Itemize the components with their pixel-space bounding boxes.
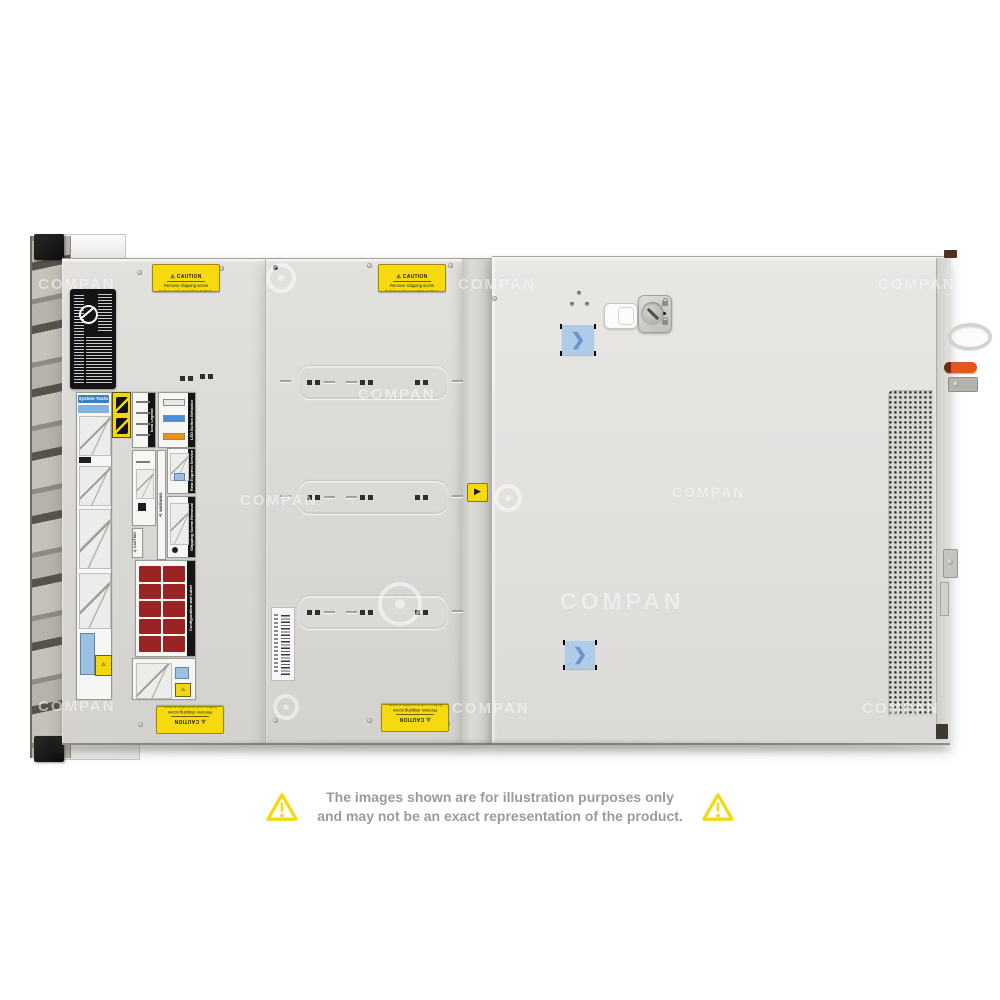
- screw-hole: [273, 265, 278, 270]
- cover-release-sticker: ❯: [562, 325, 594, 355]
- configuration-label: Configuration and Label: [135, 560, 196, 657]
- disclaimer-block: The images shown are for illustration pu…: [0, 788, 1000, 826]
- panel-mark: [200, 374, 213, 379]
- regulatory-label: [70, 289, 116, 389]
- triangle-right-icon: ▶: [474, 486, 481, 496]
- caution-strip-label: ⚠ CAUTION: [132, 528, 143, 558]
- screw: [367, 263, 372, 268]
- cover-release-latch: [604, 303, 638, 329]
- pinch-hazard-icon: [116, 397, 128, 413]
- warning-triangle-icon: [265, 792, 299, 822]
- legend-diagram-label: [132, 450, 156, 526]
- led-bar-white: [163, 399, 185, 406]
- side-latch: [943, 549, 958, 578]
- rear-ring-handle: [948, 323, 992, 350]
- disclaimer-text: The images shown are for illustration pu…: [317, 788, 683, 826]
- chevron-right-icon: ❯: [565, 646, 595, 663]
- panel-mark: [280, 495, 291, 497]
- shipping-screw-label: Shipping Screw Removal: [167, 496, 196, 558]
- drop-shadow: [45, 742, 950, 756]
- led-behavior-label: LED Button Behavior: [158, 392, 196, 448]
- regulatory-logo: [79, 305, 98, 324]
- rear-notch: [944, 250, 957, 258]
- icon-legend-label: Icon Legend: [132, 392, 156, 448]
- screw: [273, 718, 278, 723]
- cover-handle-recess: [298, 366, 448, 399]
- rack-latch-top: [34, 234, 64, 260]
- screw: [138, 722, 143, 727]
- lock-indicator-dot: [663, 312, 666, 315]
- barcode: [281, 613, 290, 675]
- panel-mark: [452, 380, 463, 382]
- screw: [367, 718, 372, 723]
- caution-title: ⚠ CAUTION: [167, 274, 204, 282]
- mini-warning-chip: ⚠: [95, 655, 112, 676]
- service-tag-barcode-label: [271, 607, 295, 681]
- pinch-hazard-icon: [116, 418, 128, 434]
- led-bar-blue: [163, 415, 185, 422]
- cover-handle-recess: [298, 481, 448, 514]
- pinch-hazard-strip: [112, 392, 131, 438]
- caution-sticker: ⚠ CAUTION Remove shipping screw before r…: [381, 704, 449, 732]
- alignment-hole: [585, 302, 589, 306]
- panel-mark: [280, 380, 291, 382]
- side-rail-tab: [940, 582, 949, 616]
- rail-diagram-label: ⚠: [132, 658, 196, 700]
- rear-latch: [948, 377, 978, 392]
- led-bar-orange: [163, 433, 185, 440]
- rear-corner-block: [936, 724, 948, 739]
- unlock-icon: [662, 301, 668, 306]
- cover-handle-recess: [298, 596, 448, 629]
- screw: [137, 270, 142, 275]
- screw: [448, 263, 453, 268]
- panel-mark: [180, 376, 193, 381]
- panel-mark: [452, 610, 463, 612]
- panel-mark: [452, 495, 463, 497]
- orange-release-lever: [944, 362, 977, 373]
- warning-strip-label: ⚠ WARNING: [157, 450, 166, 560]
- alignment-hole: [577, 291, 581, 295]
- alignment-hole: [570, 302, 574, 306]
- vent-perforation-grid: [888, 390, 933, 716]
- product-photo-canvas: { "watermark": { "text": "COMPAN" }, "st…: [0, 0, 1000, 1000]
- caution-sticker: ⚠ CAUTION Remove shipping screw before r…: [378, 264, 446, 292]
- rear-service-tag-label: Rear Express Service Tag: [167, 448, 196, 494]
- service-label-cluster: System Tasks ⚠ Icon Legend LED Button Be…: [76, 392, 196, 702]
- system-tasks-label: System Tasks ⚠: [76, 392, 112, 700]
- cover-release-sticker: ❯: [565, 641, 595, 669]
- lock-icon: [662, 320, 668, 325]
- warning-triangle-icon: [701, 792, 735, 822]
- caution-sticker: ⚠ CAUTION Remove shipping screw before r…: [152, 264, 220, 292]
- warning-triangle-sticker: ▶: [467, 483, 488, 502]
- chevron-right-icon: ❯: [562, 331, 594, 348]
- screw: [492, 296, 497, 301]
- caution-sticker: ⚠ CAUTION Remove shipping screw before r…: [156, 706, 224, 734]
- keyhole-icon: [646, 307, 659, 320]
- lock-dial: [641, 302, 664, 325]
- cover-lock: [638, 295, 672, 333]
- drive-config-blocks: [139, 566, 185, 652]
